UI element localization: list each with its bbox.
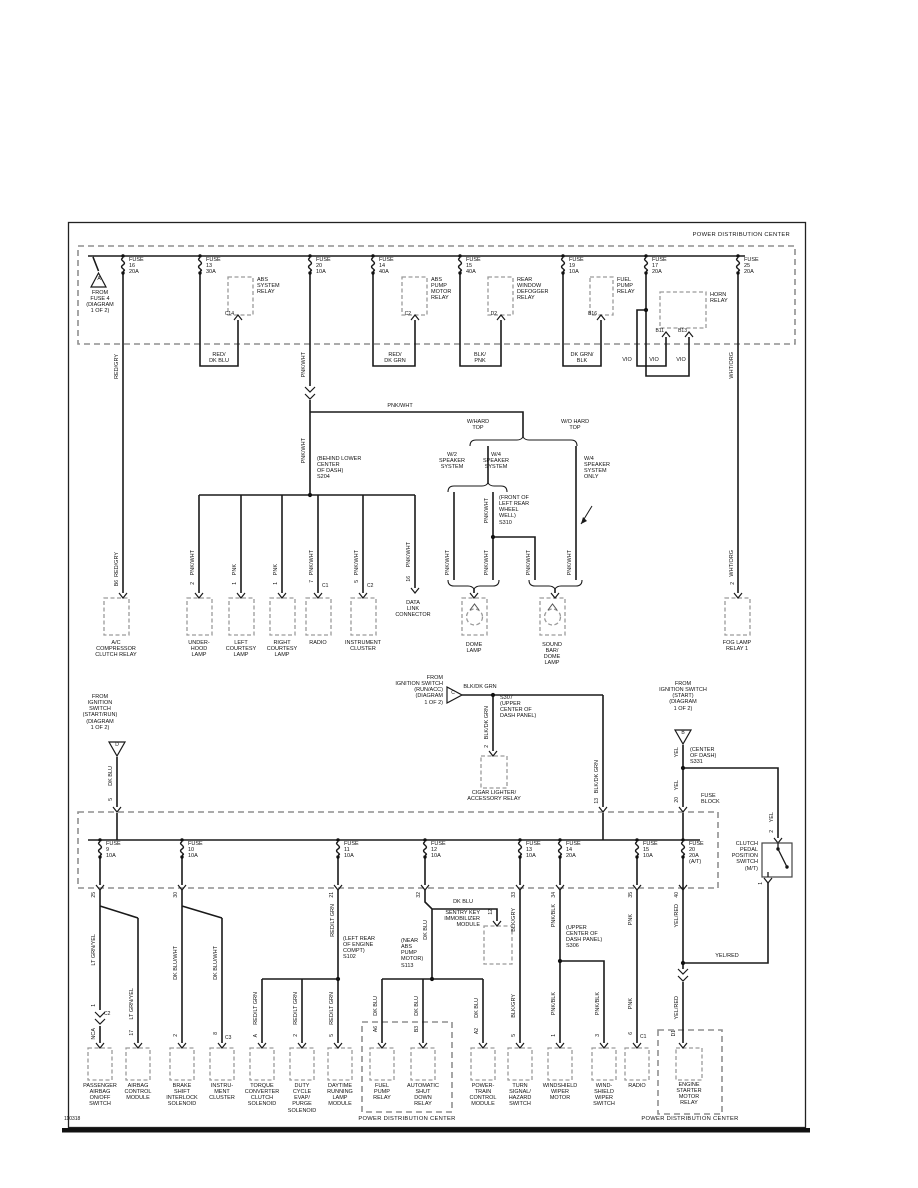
pin-radio-6: 6	[629, 1032, 635, 1035]
component-left-courtesy: LEFT COURTESY LAMP	[219, 640, 263, 658]
pin-clutch-out: 1	[759, 882, 765, 885]
pin-entry-13: 13	[595, 798, 601, 804]
wire-label-pnkwht-radio: PNK/WHT	[309, 550, 315, 575]
pin-35: 35	[629, 892, 635, 898]
component-duty-cycle-evap: DUTY CYCLE EVAP/ PURGE SOLENOID	[282, 1083, 322, 1114]
wire-label-pnkwht: PNK/WHT	[301, 352, 307, 377]
pin-airbag-switch: 1	[92, 1004, 98, 1007]
wire-label-pnkwht-3: PNK/WHT	[484, 498, 490, 523]
wire-label-dkgrn-blk: DK GRN/ BLK	[564, 352, 600, 364]
conn-cluster-c2: C2	[367, 584, 379, 590]
relay-abs-system-label: ABS SYSTEM RELAY	[257, 277, 297, 295]
pin-clutch-in: 2	[770, 830, 776, 833]
pin-evap-2: 2	[294, 1034, 300, 1037]
wire-label-redltgrn-3: RED/LT GRN	[329, 992, 335, 1025]
splice-s204-label: (BEHIND LOWER CENTER OF DASH) S204	[317, 456, 371, 481]
pin-b13: B13	[673, 329, 687, 335]
wiring-svg	[0, 0, 918, 1188]
pin-wiper-switch-3: 3	[596, 1034, 602, 1037]
wire-label-pnk-2: PNK	[628, 998, 634, 1009]
pin-25: 25	[92, 892, 98, 898]
wire-label-dkbluwht-2: DK BLU/WHT	[213, 946, 219, 980]
wire-label-yelred-h: YEL/RED	[708, 953, 746, 959]
component-underhood-lamp: UNDER- HOOD LAMP	[177, 640, 221, 658]
conn-radio2-c1: C1	[640, 1035, 652, 1041]
relay-horn-label: HORN RELAY	[710, 292, 740, 304]
pin-radio: 7	[310, 580, 316, 583]
wire-label-yel-3: YEL	[769, 812, 775, 822]
fuse-block-title: FUSE BLOCK	[701, 793, 731, 805]
fuse-14-label: FUSE 14 40A	[379, 257, 407, 275]
splice-s307-label: S307 (UPPER CENTER OF DASH PANEL)	[500, 695, 548, 720]
pin-turn-5: 5	[512, 1034, 518, 1037]
wire-label-blkdkgrn-h: BLK/DK GRN	[458, 684, 502, 690]
relay-defogger-label: REAR WINDOW DEFOGGER RELAY	[517, 277, 561, 302]
splice-s310-label: (FRONT OF LEFT REAR WHEEL WELL) S310	[499, 495, 539, 526]
pin-cigar: 2	[485, 745, 491, 748]
pin-entry-5: 5	[109, 798, 115, 801]
conn-ic-c3: C3	[225, 1036, 237, 1042]
splice-s102-label: (LEFT REAR OF ENGINE COMPT) S102	[343, 936, 383, 961]
option-w-hard-top: W/HARD TOP	[459, 419, 497, 431]
conn-radio-c1: C1	[322, 584, 334, 590]
pin-bsi-2: 2	[174, 1034, 180, 1037]
wiring-diagram-page: POWER DISTRIBUTION CENTER FROM FUSE 4 (D…	[0, 0, 918, 1188]
pin-starter-d1: D1	[672, 1030, 678, 1036]
relay-abs-pump-label: ABS PUMP MOTOR RELAY	[431, 277, 471, 302]
wire-label-dkblu-h: DK BLU	[446, 899, 480, 905]
component-sound-bar-dome: SOUND BAR/ DOME LAMP	[530, 642, 574, 667]
component-fog-lamp-relay: FOG LAMP RELAY 1	[715, 640, 759, 652]
component-pcm: POWER- TRAIN CONTROL MODULE	[463, 1083, 503, 1108]
fuse-15b-label: FUSE 15 10A	[643, 841, 669, 859]
wire-label-redltgrn-main: RED/LT GRN	[330, 904, 336, 937]
pin-acm-17: 17	[130, 1030, 136, 1036]
wire-label-red-gry: RED/GRY	[114, 354, 120, 379]
component-asd-relay: AUTOMATIC SHUT DOWN RELAY	[403, 1083, 443, 1108]
component-brake-shift-interlock: BRAKE SHIFT INTERLOCK SOLENOID	[162, 1083, 202, 1108]
wire-label-red-dkblu: RED/ DK BLU	[202, 352, 236, 364]
relay-fuel-pump-label: FUEL PUMP RELAY	[617, 277, 653, 295]
wire-label-pnkblk-2: PNK/BLK	[595, 992, 601, 1015]
pin-tcc-a: A	[254, 1034, 260, 1037]
wire-label-whtorg: WHT/ORG	[729, 352, 735, 379]
wire-label-dkblu-d: DK BLU	[108, 766, 114, 786]
component-fuel-pump-relay-2: FUEL PUMP RELAY	[362, 1083, 402, 1101]
pin-ic-8: 8	[214, 1032, 220, 1035]
wire-label-dkblu-3: DK BLU	[474, 998, 480, 1018]
fuse-13b-label: FUSE 13 10A	[526, 841, 552, 859]
fuse-15-label: FUSE 15 40A	[466, 257, 494, 275]
wire-label-pnkwht-uh: PNK/WHT	[190, 550, 196, 575]
wire-label-pnkwht-6: PNK/WHT	[526, 550, 532, 575]
pin-34: 34	[552, 892, 558, 898]
fuse-11-label: FUSE 11 10A	[344, 841, 370, 859]
wire-label-blk-pnk: BLK/ PNK	[464, 352, 496, 364]
splice-s306-label: (UPPER CENTER OF DASH PANEL) S306	[566, 925, 614, 950]
conn-airbag-c2: C2	[104, 1012, 116, 1018]
component-cigar-relay: CIGAR LIGHTER/ ACCESSORY RELAY	[456, 790, 532, 802]
fuse-20-label: FUSE 20 10A	[316, 257, 344, 275]
pin-b6: B6	[115, 580, 121, 586]
component-data-link-connector: DATA LINK CONNECTOR	[391, 600, 435, 618]
source-c-label: FROM IGNITION SWITCH (RUN/ACC) (DIAGRAM …	[393, 675, 443, 706]
component-sentry-key: SENTRY KEY IMMOBILIZER MODULE	[432, 910, 480, 928]
wire-label-yel-1: YEL	[674, 747, 680, 757]
wire-label-dkblu-1: DK BLU	[373, 996, 379, 1016]
component-ac-clutch-relay: A/C COMPRESSOR CLUTCH RELAY	[94, 640, 138, 658]
wire-label-whtorg-2: WHT/ORG	[729, 550, 735, 577]
source-a-letter: A	[94, 277, 104, 283]
option-w4-only: W/4 SPEAKER SYSTEM ONLY	[584, 456, 624, 481]
pin-32: 32	[417, 892, 423, 898]
wire-label-redltgrn-2: RED/LT GRN	[293, 992, 299, 1025]
wire-label-pnkwht-4: PNK/WHT	[445, 550, 451, 575]
source-d-letter: D	[112, 743, 122, 749]
pin-33: 33	[512, 892, 518, 898]
wire-label-blkdkgrn-v2: BLK/DK GRN	[594, 760, 600, 793]
pin-underhood: 2	[191, 582, 197, 585]
wire-label-ltgrnyel-2: LT GRN/YEL	[129, 988, 135, 1020]
pin-asd-b3: B3	[415, 1026, 421, 1032]
wire-label-blkgry-1: BLK/GRY	[511, 908, 517, 932]
pin-fuelpump-a6: A6	[374, 1026, 380, 1032]
option-w4-speaker: W/4 SPEAKER SYSTEM	[477, 452, 515, 470]
pin-d2: D2	[481, 312, 497, 318]
component-clutch-switch: CLUTCH PEDAL POSITION SWITCH (M/T)	[724, 841, 758, 872]
pin-30: 30	[174, 892, 180, 898]
component-starter-relay: ENGINE STARTER MOTOR RELAY	[669, 1082, 709, 1107]
component-dome-lamp: DOME LAMP	[452, 642, 496, 654]
wire-label-pnkblk-1: PNK/BLK	[551, 992, 557, 1015]
wire-label-vio-2: VIO	[646, 357, 662, 363]
pdc-top-title: POWER DISTRIBUTION CENTER	[655, 232, 790, 238]
component-torque-converter: TORQUE CONVERTER CLUTCH SOLENOID	[242, 1083, 282, 1108]
component-radio-1: RADIO	[296, 640, 340, 646]
pin-dlc: 16	[407, 576, 413, 582]
component-instrument-cluster-2: INSTRU- MENT CLUSTER	[202, 1083, 242, 1101]
component-wiper-motor: WINDSHIELD WIPER MOTOR	[540, 1083, 580, 1101]
fuse-19-label: FUSE 19 10A	[569, 257, 597, 275]
component-instrument-cluster-1: INSTRUMENT CLUSTER	[341, 640, 385, 652]
diagram-footer-id: 110318	[64, 1117, 104, 1123]
pin-drl-5: 5	[330, 1034, 336, 1037]
wire-label-pnkwht-ic: PNK/WHT	[354, 550, 360, 575]
pin-wiper-motor-1: 1	[552, 1034, 558, 1037]
source-b-letter: B	[678, 731, 688, 737]
pin-right-courtesy: 1	[274, 582, 280, 585]
wire-label-pnkwht-2: PNK/WHT	[301, 438, 307, 463]
fuse-13-label: FUSE 13 30A	[206, 257, 234, 275]
pin-left-courtesy: 1	[233, 582, 239, 585]
pin-c14: C14	[218, 312, 234, 318]
component-turn-signal-hazard: TURN SIGNAL/ HAZARD SWITCH	[500, 1083, 540, 1108]
source-d-label: FROM IGNITION SWITCH (START/RUN) (DIAGRA…	[74, 694, 126, 731]
wire-label-ltgrnyel-1: LT GRN/YEL	[91, 934, 97, 966]
wire-label-pnkwht-7: PNK/WHT	[567, 550, 573, 575]
pin-cluster: 5	[355, 580, 361, 583]
pdc-bottom-right-title: POWER DISTRIBUTION CENTER	[634, 1116, 746, 1122]
pin-c2: C2	[395, 312, 411, 318]
splice-s113-label: (NEAR ABS PUMP MOTOR) S113	[401, 938, 431, 969]
component-radio-2: RADIO	[617, 1083, 657, 1089]
fuse-12-label: FUSE 12 10A	[431, 841, 457, 859]
pin-pcm-a2: A2	[475, 1028, 481, 1034]
wire-label-pnk-rc: PNK	[273, 564, 279, 575]
wire-label-pnkwht-h: PNK/WHT	[378, 403, 422, 409]
component-passenger-airbag-switch: PASSENGER AIRBAG ON/OFF SWITCH	[80, 1083, 120, 1108]
pin-entry-20: 20	[675, 797, 681, 803]
option-wo-hard-top: W/O HARD TOP	[554, 419, 596, 431]
wire-label-pnkblk-main: PNK/BLK	[551, 904, 557, 927]
component-airbag-control-module: AIRBAG CONTROL MODULE	[118, 1083, 158, 1101]
fuse-20b-label: FUSE 20 20A (A/T)	[689, 841, 715, 866]
wire-label-blkdkgrn-v1: BLK/DK GRN	[484, 706, 490, 739]
pin-sentry-12: 12	[489, 909, 495, 915]
component-daytime-running: DAYTIME RUNNING LAMP MODULE	[320, 1083, 360, 1108]
fuse-25-label: FUSE 25 20A	[744, 257, 772, 275]
fuse-17-label: FUSE 17 20A	[652, 257, 680, 275]
wire-label-dkblu-main: DK BLU	[423, 920, 429, 940]
wire-label-pnkwht-dlc: PNK/WHT	[406, 542, 412, 567]
wire-label-pnk-1: PNK	[628, 914, 634, 925]
source-a-label: FROM FUSE 4 (DIAGRAM 1 OF 2)	[78, 290, 122, 315]
pin-40: 40	[675, 892, 681, 898]
fuse-16-label: FUSE 16 20A	[129, 257, 157, 275]
wire-label-dkbluwht-1: DK BLU/WHT	[173, 946, 179, 980]
wire-label-blkgry-2: BLK/GRY	[511, 994, 517, 1018]
wire-label-vio-1: VIO	[619, 357, 635, 363]
wire-label-vio-3: VIO	[673, 357, 689, 363]
wire-label-red-dkgrn: RED/ DK GRN	[377, 352, 413, 364]
fuse-10-label: FUSE 10 10A	[188, 841, 214, 859]
option-w2-speaker: W/2 SPEAKER SYSTEM	[433, 452, 471, 470]
pin-21: 21	[330, 892, 336, 898]
wire-label-pnkwht-5: PNK/WHT	[484, 550, 490, 575]
wire-label-pnk-lc: PNK	[232, 564, 238, 575]
source-c-letter: C	[448, 691, 458, 697]
wire-label-yelred-f20: YEL/RED	[674, 904, 680, 928]
pin-b16: B16	[579, 312, 597, 318]
splice-s331-label: (CENTER OF DASH) S331	[690, 747, 728, 765]
wire-label-yel-2: YEL	[674, 780, 680, 790]
fuse-9-label: FUSE 9 10A	[106, 841, 132, 859]
wire-label-dkblu-2: DK BLU	[414, 996, 420, 1016]
wire-label-nca: NCA	[91, 1028, 97, 1040]
fuse-14b-label: FUSE 14 20A	[566, 841, 592, 859]
pin-b11: B11	[650, 329, 664, 335]
wire-label-yelred-starter: YEL/RED	[674, 996, 680, 1020]
source-b-label: FROM IGNITION SWITCH (START) (DIAGRAM 1 …	[654, 681, 712, 712]
wire-label-redltgrn-1: RED/LT GRN	[253, 992, 259, 1025]
pdc-bottom-mid-title: POWER DISTRIBUTION CENTER	[351, 1116, 463, 1122]
pin-fog: 2	[731, 582, 737, 585]
wire-label-red-gry-2: RED/GRY	[114, 552, 120, 577]
